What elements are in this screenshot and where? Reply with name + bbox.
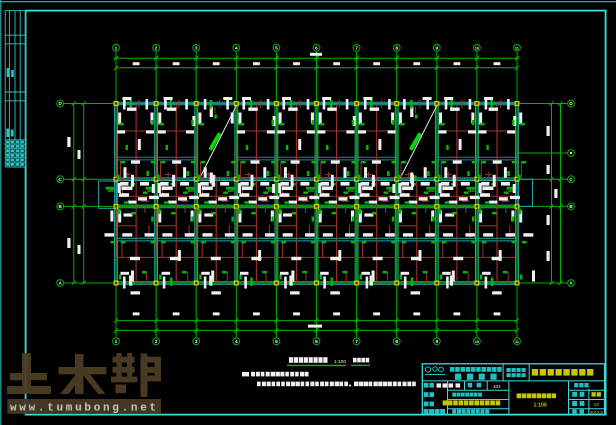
svg-text:11: 11 [515, 47, 519, 51]
svg-text:1:100: 1:100 [334, 359, 346, 365]
svg-text:6: 6 [315, 339, 318, 345]
svg-text:4: 4 [235, 339, 238, 345]
svg-text:02: 02 [594, 402, 599, 407]
svg-text:2: 2 [155, 339, 158, 345]
svg-text:www.tumubong.net: www.tumubong.net [10, 403, 159, 415]
svg-text:5: 5 [275, 339, 278, 345]
svg-text:102: 102 [493, 384, 501, 389]
svg-text:9: 9 [435, 46, 438, 52]
svg-text:4: 4 [235, 46, 238, 52]
svg-text:1: 1 [115, 46, 118, 52]
svg-text:7: 7 [355, 46, 358, 52]
svg-text:10: 10 [475, 47, 479, 51]
svg-text:10: 10 [475, 340, 479, 344]
svg-text:3: 3 [195, 46, 198, 52]
svg-text:5: 5 [275, 46, 278, 52]
svg-text:8: 8 [395, 46, 398, 52]
svg-text:7: 7 [355, 339, 358, 345]
svg-text:1: 1 [115, 339, 118, 345]
svg-text:2013.5: 2013.5 [590, 410, 603, 415]
svg-text:2: 2 [155, 46, 158, 52]
svg-text:1:100: 1:100 [534, 403, 547, 409]
svg-text:3: 3 [195, 339, 198, 345]
svg-text:6: 6 [315, 46, 318, 52]
svg-text:11: 11 [515, 340, 519, 344]
svg-text:8: 8 [395, 339, 398, 345]
svg-text:9: 9 [435, 339, 438, 345]
